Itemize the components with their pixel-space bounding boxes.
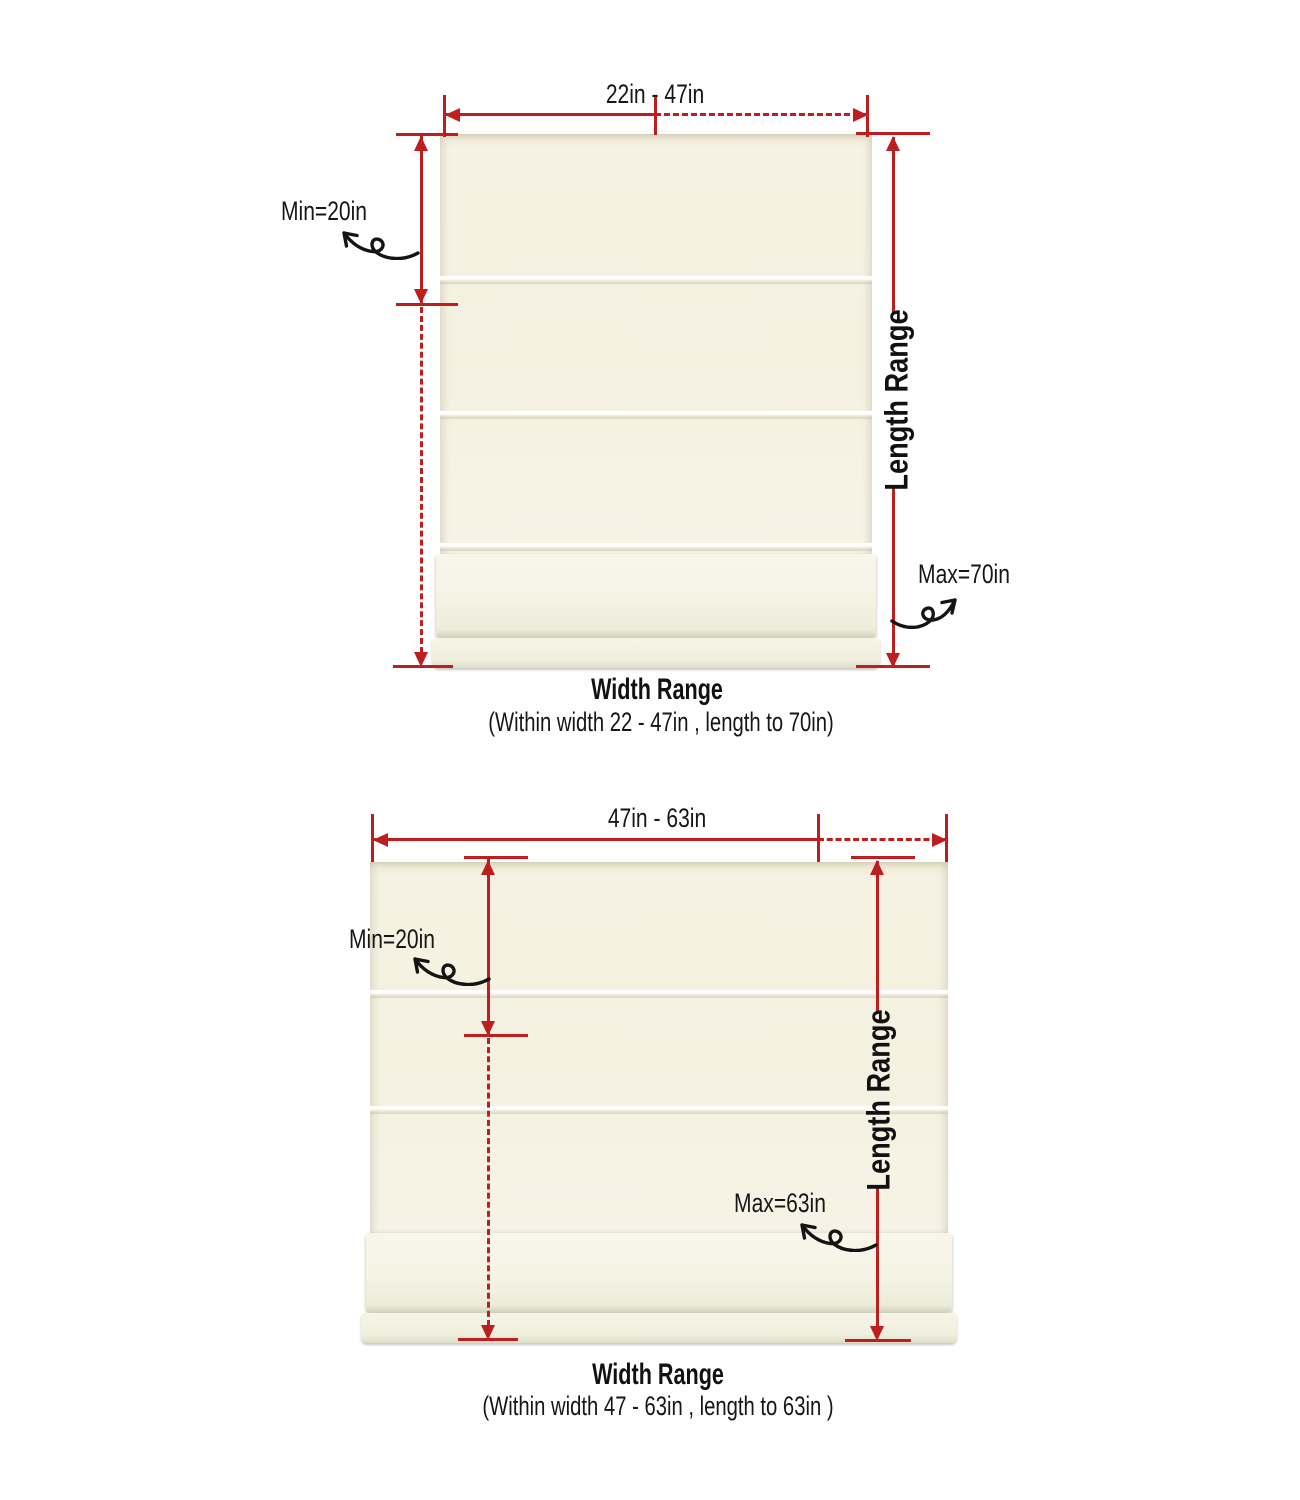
length-extension-line-dashed xyxy=(487,1038,490,1326)
arrowhead-left-icon xyxy=(445,108,460,122)
width-dimension-label: 47in - 63in xyxy=(608,804,706,834)
dimension-tick xyxy=(845,1339,911,1342)
curl-arrow-icon xyxy=(393,946,493,986)
arrowhead-up-icon xyxy=(414,136,428,151)
curl-arrow-icon xyxy=(889,587,969,629)
caption-subtitle: (Within width 22 - 47in , length to 70in… xyxy=(488,707,834,738)
width-dimension-line-dashed xyxy=(655,113,868,116)
shade-bottom-fold xyxy=(432,638,880,668)
width-dimension-label: 22in - 47in xyxy=(606,80,704,110)
width-dimension-line-dashed xyxy=(818,838,947,841)
arrowhead-up-icon xyxy=(481,860,495,875)
shade-image xyxy=(440,134,872,558)
dimension-tick xyxy=(396,133,458,136)
caption-title: Width Range xyxy=(592,1358,724,1392)
max-length-label: Max=70in xyxy=(918,560,1010,590)
dimension-tick xyxy=(817,814,820,862)
dimension-tick xyxy=(464,1034,528,1037)
shade-fold-line xyxy=(370,990,948,998)
dimension-tick xyxy=(371,814,374,862)
dimension-tick xyxy=(856,665,930,668)
length-dimension-line-lower xyxy=(892,486,895,666)
caption-title: Width Range xyxy=(591,673,723,707)
arrowhead-down-icon xyxy=(414,289,428,304)
dimension-tick xyxy=(443,95,446,137)
dimension-tick xyxy=(856,132,930,135)
caption-subtitle: (Within width 47 - 63in , length to 63in… xyxy=(482,1391,833,1422)
width-dimension-line-solid xyxy=(445,113,655,116)
width-dimension-line-solid xyxy=(373,838,818,841)
length-dimension-line-upper xyxy=(892,137,895,314)
length-range-label: Length Range xyxy=(879,309,916,490)
dimension-tick xyxy=(393,665,453,668)
curl-arrow-icon xyxy=(780,1212,880,1252)
shade-bottom-fold xyxy=(436,554,876,638)
dimension-tick xyxy=(464,856,528,859)
curl-arrow-icon xyxy=(322,220,422,260)
dimension-tick xyxy=(945,814,948,862)
dimension-tick xyxy=(396,303,458,306)
dimension-tick xyxy=(866,95,869,137)
length-extension-line-dashed xyxy=(420,307,423,653)
shade-fold-line xyxy=(440,543,872,551)
length-dimension-line-upper xyxy=(876,861,879,1011)
roman-shade-size-diagram: 22in - 47in Min=20in xyxy=(0,0,1300,1500)
dimension-tick xyxy=(458,1338,518,1341)
dimension-tick xyxy=(851,856,915,859)
arrowhead-left-icon xyxy=(373,833,388,847)
shade-fold-line xyxy=(440,411,872,419)
length-range-label: Length Range xyxy=(861,1009,898,1190)
shade-fold-line xyxy=(440,276,872,284)
length-dimension-line-lower xyxy=(876,1188,879,1328)
